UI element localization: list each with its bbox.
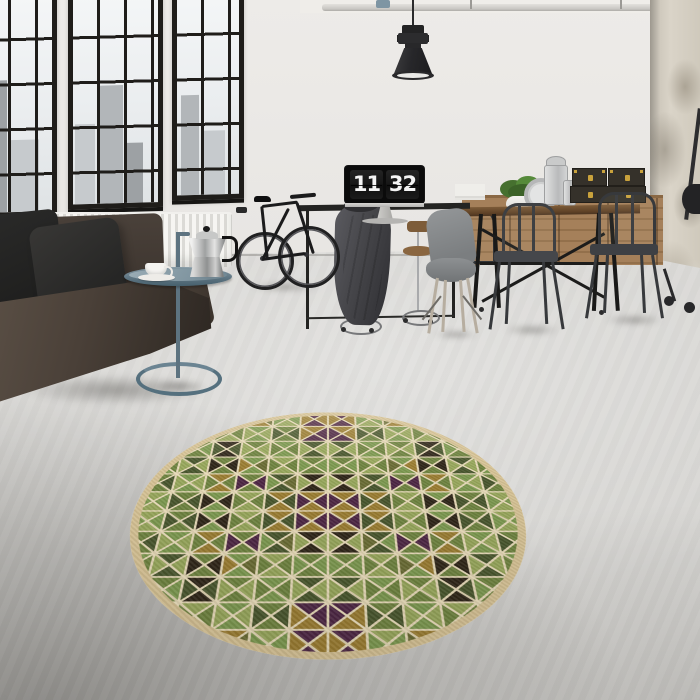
- stool-caster: [341, 327, 346, 332]
- book-stack: [455, 184, 485, 196]
- factory-windows: [0, 0, 297, 229]
- metal-armchair-seat: [590, 244, 658, 255]
- window-3: [172, 0, 244, 201]
- chair-shadow: [592, 312, 676, 328]
- chair-slat: [532, 206, 535, 252]
- metal-armchair-seat: [494, 251, 558, 262]
- pendant-lamp-bulb: [397, 73, 429, 78]
- rug-disc: [85, 412, 571, 659]
- lamp-cord: [412, 0, 414, 26]
- monitor-base: [362, 218, 408, 224]
- box-latch: [588, 175, 593, 181]
- box-corner: [574, 170, 577, 173]
- saucer: [138, 274, 175, 281]
- chair-slat: [518, 206, 521, 252]
- window-glass: [177, 0, 239, 196]
- window-1: [0, 0, 57, 219]
- round-geometric-rug: [134, 391, 522, 631]
- window-muntins: [177, 0, 239, 196]
- table-caster: [479, 307, 484, 312]
- stool-column: [417, 232, 419, 312]
- clock-minutes: 32: [386, 170, 419, 199]
- rug-perspective: [134, 391, 522, 631]
- bike-handlebar: [290, 193, 316, 199]
- storage-box: [608, 168, 645, 186]
- storage-box: [572, 168, 607, 186]
- box-latch: [625, 175, 630, 181]
- pipe-bracket: [620, 0, 622, 9]
- clock-hours: 11: [350, 170, 383, 199]
- chair-shadow: [424, 328, 488, 341]
- monitor-screen: 11 32: [345, 166, 424, 203]
- floor-lamp-head: [682, 184, 700, 214]
- loft-room-photo: 11 32: [0, 0, 700, 700]
- box-corner: [602, 170, 605, 173]
- monitor-chin: [345, 203, 424, 207]
- pipe-fitting: [376, 0, 390, 8]
- caster-wheel: [664, 296, 674, 306]
- wall-hook: [236, 207, 247, 213]
- window-muntins: [0, 0, 52, 214]
- chair-slat: [631, 195, 634, 245]
- box-corner: [640, 170, 643, 173]
- moka-pot-knob: [203, 226, 210, 232]
- stool-caster: [403, 318, 408, 323]
- side-table-pole: [176, 232, 180, 378]
- moka-pot-boiler: [190, 256, 224, 277]
- caster-wheel: [684, 302, 695, 313]
- pipe-bracket: [470, 0, 472, 9]
- window-glass: [0, 0, 52, 214]
- window-2: [68, 0, 163, 210]
- moka-pot-handle: [222, 236, 238, 262]
- chair-slat: [615, 195, 618, 245]
- window-muntins: [73, 0, 158, 204]
- stool-caster: [369, 328, 374, 333]
- side-table-hook: [176, 232, 190, 236]
- moka-pot-lid: [196, 231, 218, 239]
- box-corner: [610, 170, 613, 173]
- box-latch: [588, 192, 593, 198]
- window-glass: [73, 0, 158, 204]
- bike-saddle: [254, 196, 271, 202]
